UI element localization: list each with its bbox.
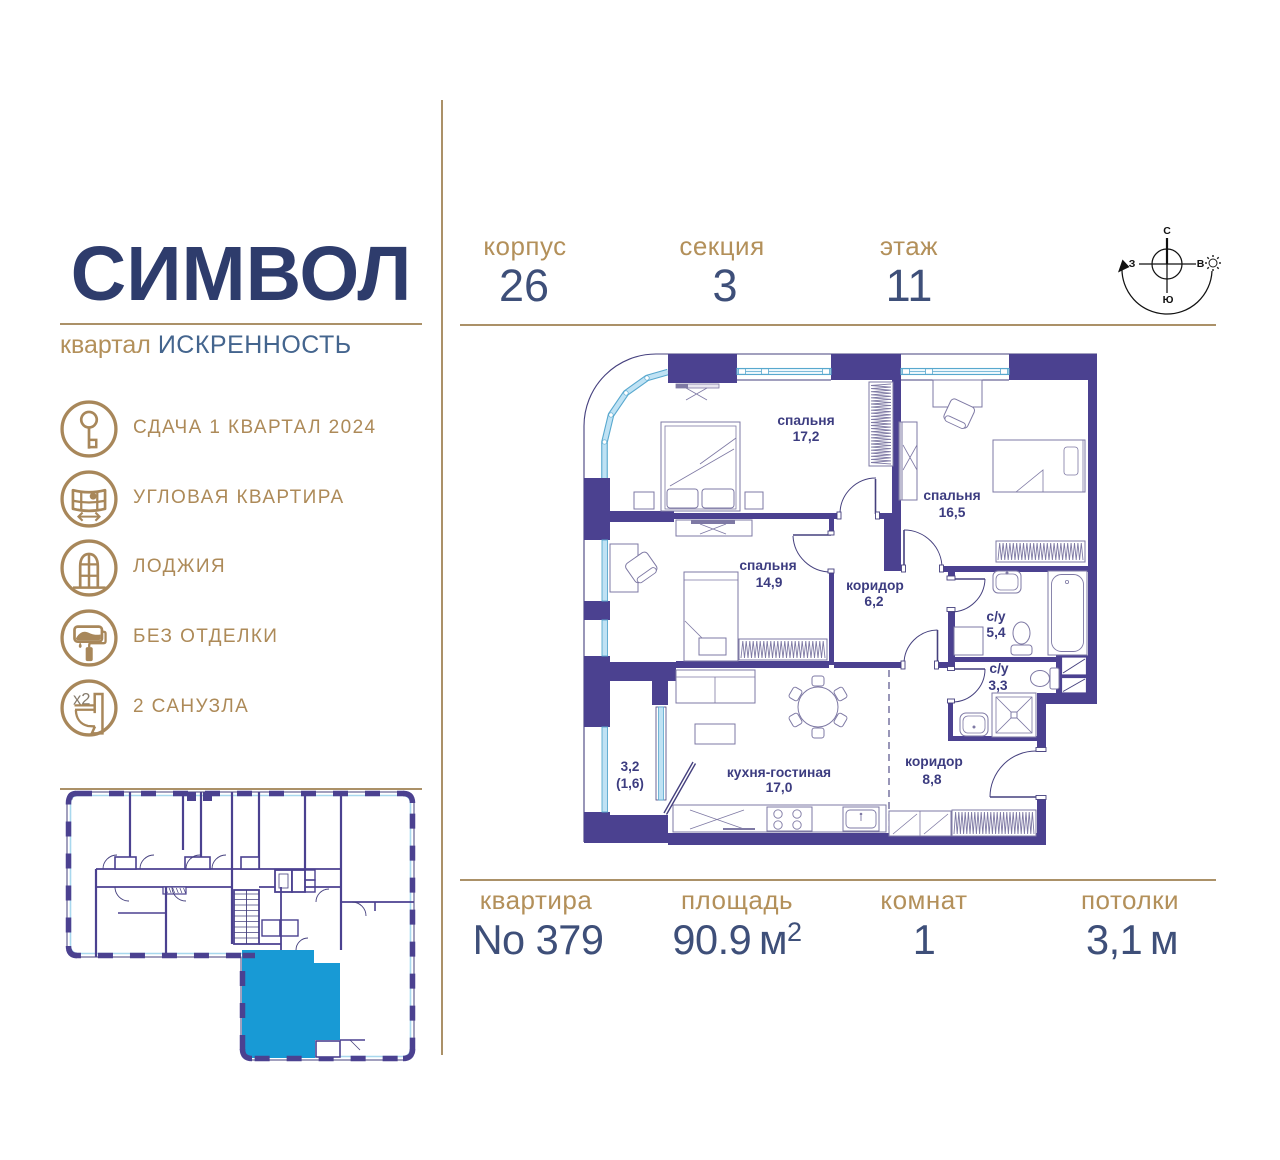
svg-text:З: З <box>1129 258 1136 270</box>
svg-text:коридор: коридор <box>846 578 904 593</box>
svg-text:3,2: 3,2 <box>621 759 640 774</box>
svg-text:С: С <box>1163 225 1171 237</box>
svg-text:16,5: 16,5 <box>939 505 966 520</box>
svg-text:спальня: спальня <box>739 558 796 573</box>
svg-text:спальня: спальня <box>777 413 834 428</box>
svg-text:В: В <box>1197 258 1205 270</box>
svg-text:17,0: 17,0 <box>766 780 793 795</box>
svg-text:3,3: 3,3 <box>988 678 1008 693</box>
svg-text:17,2: 17,2 <box>793 429 820 444</box>
svg-text:(1,6): (1,6) <box>616 776 644 791</box>
svg-text:5,4: 5,4 <box>986 625 1006 640</box>
svg-text:Ю: Ю <box>1163 294 1174 306</box>
svg-text:коридор: коридор <box>905 754 963 769</box>
svg-text:6,2: 6,2 <box>864 594 884 609</box>
svg-text:8,8: 8,8 <box>922 772 942 787</box>
svg-text:с/у: с/у <box>986 609 1006 624</box>
svg-text:спальня: спальня <box>923 488 980 503</box>
svg-text:с/у: с/у <box>989 661 1009 676</box>
svg-text:14,9: 14,9 <box>756 575 783 590</box>
svg-text:кухня-гостиная: кухня-гостиная <box>727 765 831 780</box>
